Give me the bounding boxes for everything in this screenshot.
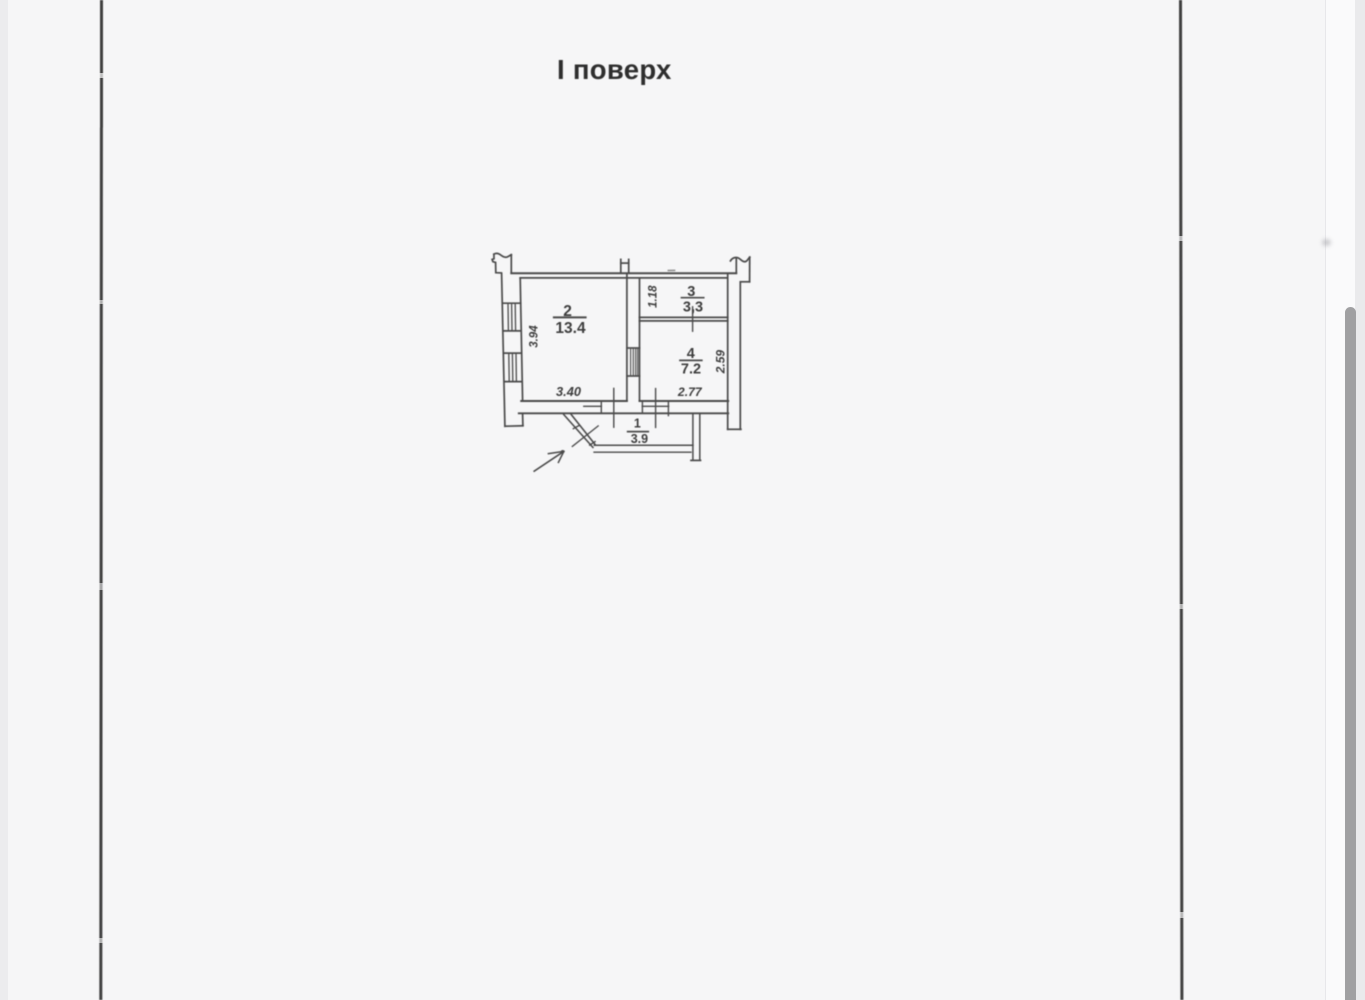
svg-text:1.18: 1.18 xyxy=(647,285,659,308)
svg-text:2.59: 2.59 xyxy=(713,350,727,375)
svg-text:7.2: 7.2 xyxy=(681,362,701,378)
svg-text:13.4: 13.4 xyxy=(555,320,586,337)
svg-text:1: 1 xyxy=(634,417,641,431)
svg-text:3,3: 3,3 xyxy=(683,299,703,315)
svg-text:4: 4 xyxy=(687,346,695,362)
svg-text:2.77: 2.77 xyxy=(677,385,703,399)
svg-text:3.40: 3.40 xyxy=(556,384,581,399)
svg-text:3.94: 3.94 xyxy=(528,325,540,348)
svg-text:3.9: 3.9 xyxy=(631,432,648,446)
